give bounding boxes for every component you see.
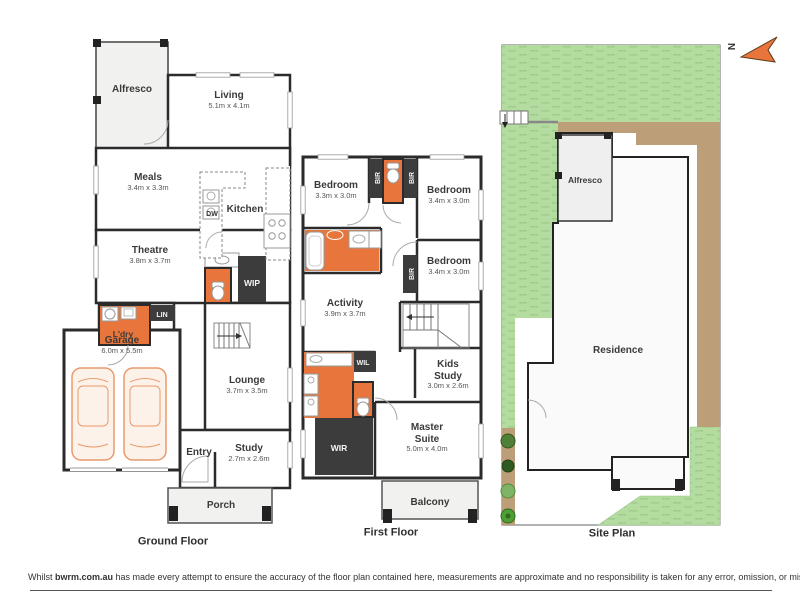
first-floor-title: First Floor <box>364 527 418 540</box>
activity-label: Activity3.9m x 3.7m <box>324 298 365 318</box>
master-suite-label: MasterSuite5.0m x 4.0m <box>406 422 447 454</box>
bedroom2-label: Bedroom3.4m x 3.0m <box>427 185 471 205</box>
bir1-label: BIR <box>367 172 385 184</box>
site-alfresco-label: Alfresco <box>568 170 602 188</box>
bir3-label: BIR <box>401 268 419 280</box>
bedroom3-label: Bedroom3.4m x 3.0m <box>427 256 471 276</box>
north-arrow-icon <box>741 37 777 62</box>
bir2-label: BIR <box>401 172 419 184</box>
bedroom1-label: Bedroom3.3m x 3.0m <box>314 180 358 200</box>
brand-name: bwrm.com.au <box>55 572 113 582</box>
kids-study-label: KidsStudy3.0m x 2.6m <box>427 359 468 391</box>
floor-plan-sheet: Alfresco Living5.1m x 4.1m Meals3.4m x 3… <box>0 0 800 600</box>
kitchen-label: Kitchen <box>227 199 264 217</box>
entry-label: Entry <box>186 442 212 460</box>
north-label: N <box>727 43 738 50</box>
study-label: Study2.7m x 2.6m <box>228 443 269 463</box>
living-label: Living5.1m x 4.1m <box>208 90 249 110</box>
balcony-label: Balcony <box>411 492 450 510</box>
wil-label: WIL <box>357 352 370 370</box>
lounge-label: Lounge3.7m x 3.5m <box>226 375 267 395</box>
ground-floor-title: Ground Floor <box>138 536 208 549</box>
alfresco-label: Alfresco <box>112 79 152 97</box>
site-plan-title: Site Plan <box>589 528 635 541</box>
residence-label: Residence <box>593 340 643 358</box>
site-plan <box>500 45 720 525</box>
lin-label: LIN <box>156 304 167 322</box>
garage-label: Garage6.0m x 5.5m <box>101 335 142 355</box>
footer-divider <box>30 590 772 591</box>
disclaimer-text: Whilst bwrm.com.au has made every attemp… <box>28 572 772 582</box>
porch-label: Porch <box>207 495 235 513</box>
first-floor-plan <box>301 155 483 523</box>
dishwasher-label: DW <box>206 203 218 221</box>
wip-label: WIP <box>244 273 260 291</box>
wir-label: WIR <box>331 438 348 456</box>
theatre-label: Theatre3.8m x 3.7m <box>129 245 170 265</box>
meals-label: Meals3.4m x 3.3m <box>127 172 168 192</box>
